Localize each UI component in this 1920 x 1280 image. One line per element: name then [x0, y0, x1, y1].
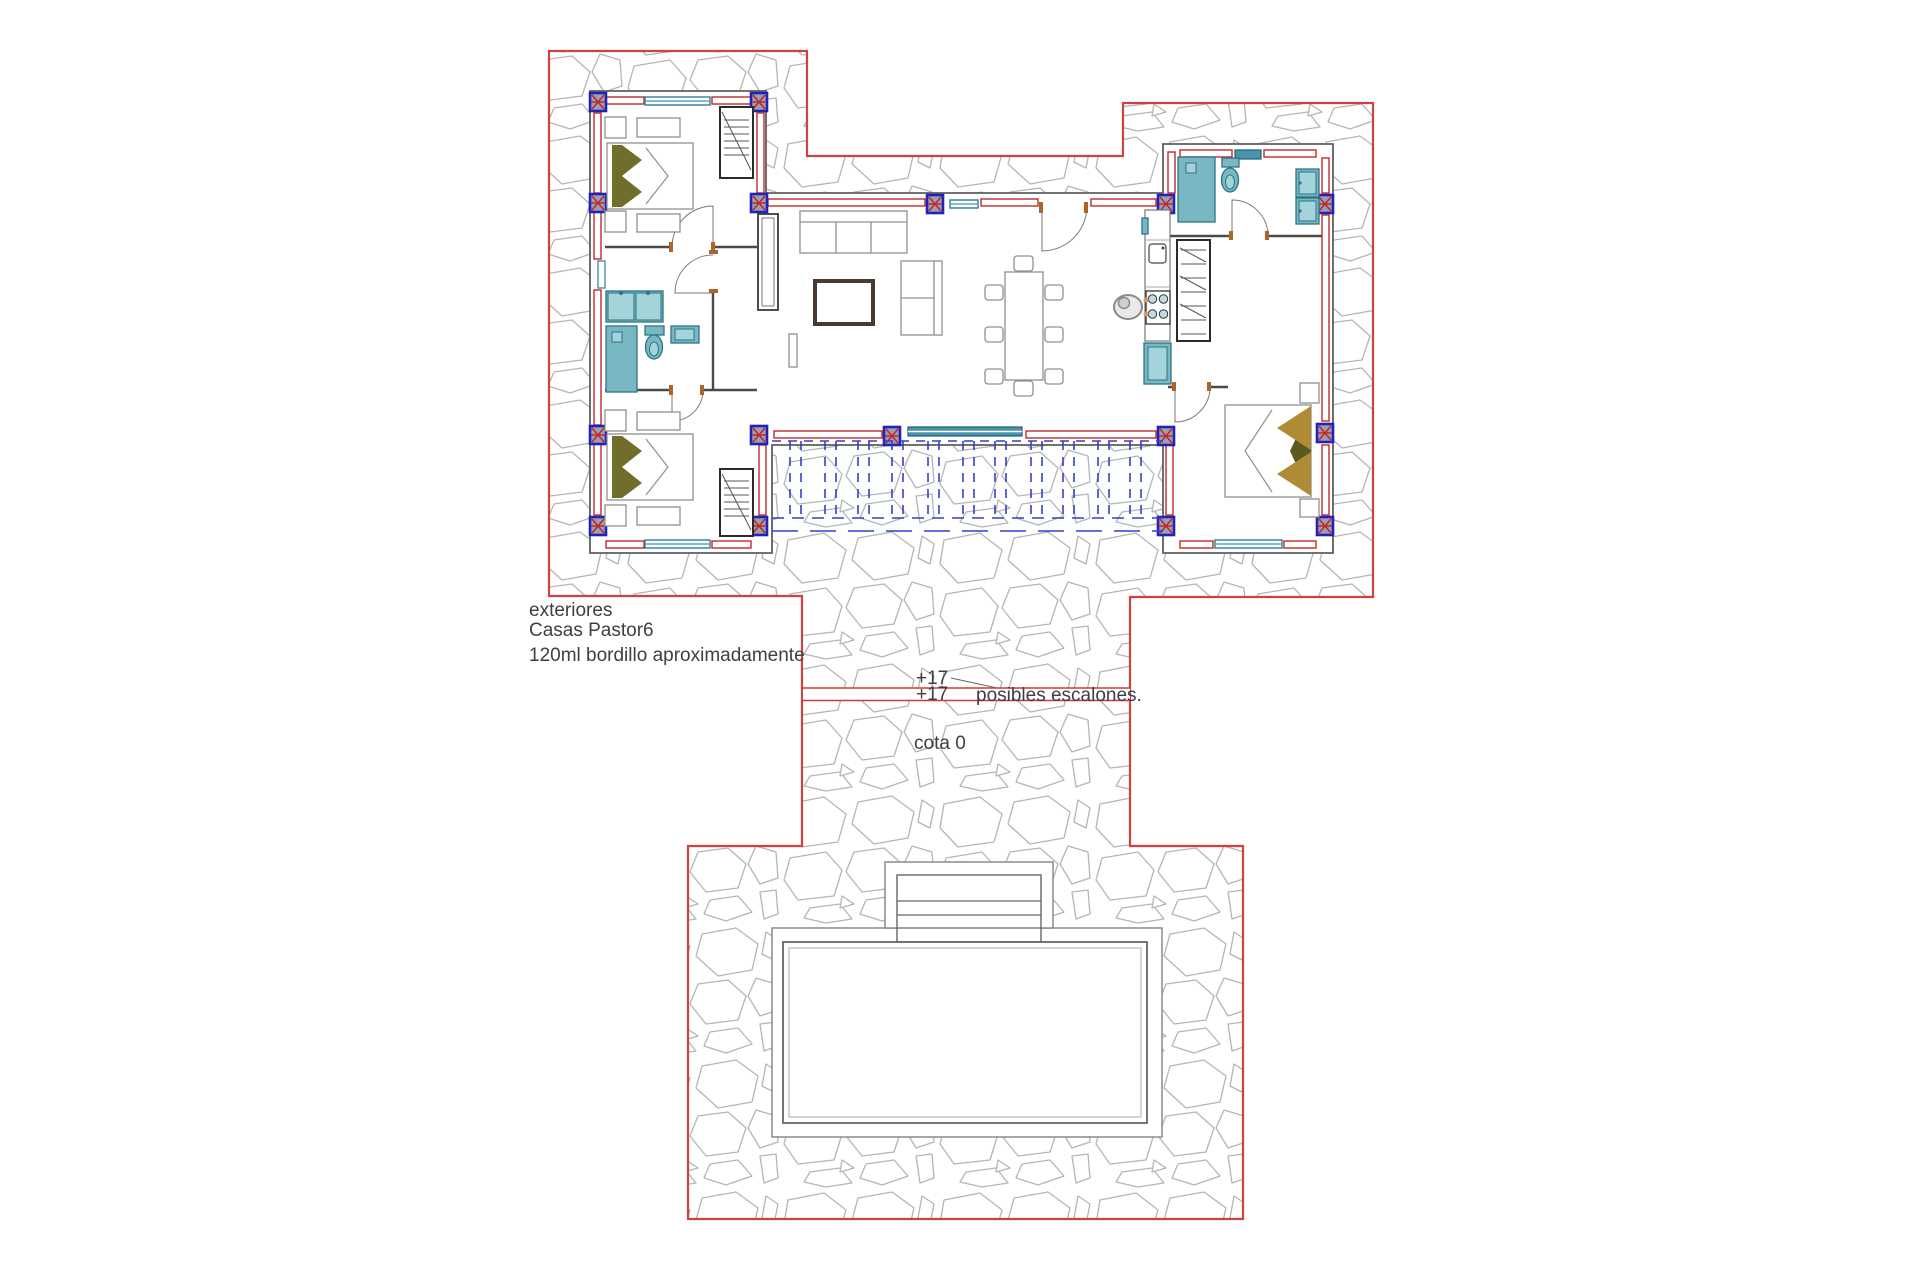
nightstand — [605, 117, 626, 138]
pantry-shelves — [1177, 240, 1210, 341]
shower — [1178, 157, 1215, 222]
chair — [1045, 327, 1063, 342]
kitchen-sink — [1149, 244, 1166, 263]
chair — [1014, 381, 1033, 396]
chair — [985, 327, 1003, 342]
vanity — [1296, 169, 1319, 224]
tv-cabinet — [758, 214, 778, 310]
sofa-large — [800, 211, 907, 253]
wardrobe — [720, 469, 753, 536]
nightstand — [605, 410, 626, 431]
label-datum: cota 0 — [914, 733, 966, 754]
bench — [637, 507, 680, 525]
window — [645, 97, 710, 105]
nightstand — [605, 505, 626, 526]
wardrobe — [720, 107, 753, 178]
pool-steps — [897, 875, 1041, 942]
label-exteriores: exteriores — [529, 600, 612, 621]
washbasin — [671, 326, 699, 343]
base-cabinet — [1144, 343, 1171, 384]
toilet — [1222, 158, 1240, 192]
window — [950, 200, 978, 208]
label-steps-note: posibles escalones. — [976, 685, 1142, 706]
chair — [985, 285, 1003, 300]
dining-table — [1005, 272, 1043, 380]
bench — [637, 214, 680, 232]
stove — [1146, 291, 1170, 324]
sliding-glass-door — [908, 427, 1022, 436]
chair — [985, 369, 1003, 384]
window — [645, 540, 710, 548]
chair — [1045, 285, 1063, 300]
sofa-small — [901, 261, 942, 335]
toilet — [645, 326, 664, 359]
nightstand — [605, 211, 626, 232]
floor-plan-canvas: exteriores Casas Pastor6 120ml bordillo … — [0, 0, 1920, 1280]
shower — [606, 326, 637, 392]
label-level-below: +17 — [916, 684, 948, 705]
nightstand — [1300, 383, 1319, 403]
chair — [1045, 369, 1063, 384]
window — [1215, 540, 1282, 548]
nightstand — [1300, 499, 1319, 517]
label-project-name: Casas Pastor6 — [529, 620, 654, 641]
coffee-table — [815, 281, 873, 324]
bench — [637, 118, 680, 137]
pool-basin — [783, 942, 1147, 1123]
label-curb-note: 120ml bordillo aproximadamente — [529, 645, 805, 666]
floor-plan-drawing: exteriores Casas Pastor6 120ml bordillo … — [0, 0, 1920, 1280]
chair — [1014, 256, 1033, 271]
bench — [637, 412, 680, 430]
window — [598, 261, 605, 288]
